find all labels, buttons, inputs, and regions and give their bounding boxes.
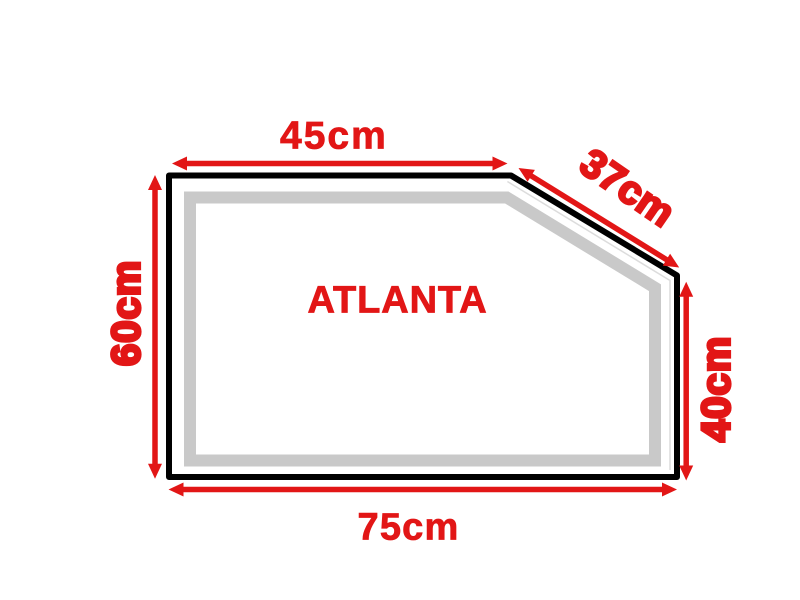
svg-text:45cm: 45cm	[280, 115, 388, 158]
svg-text:75cm: 75cm	[358, 507, 460, 549]
svg-text:40cm: 40cm	[695, 336, 739, 442]
svg-text:60cm: 60cm	[105, 260, 149, 366]
svg-text:ATLANTA: ATLANTA	[308, 280, 488, 322]
